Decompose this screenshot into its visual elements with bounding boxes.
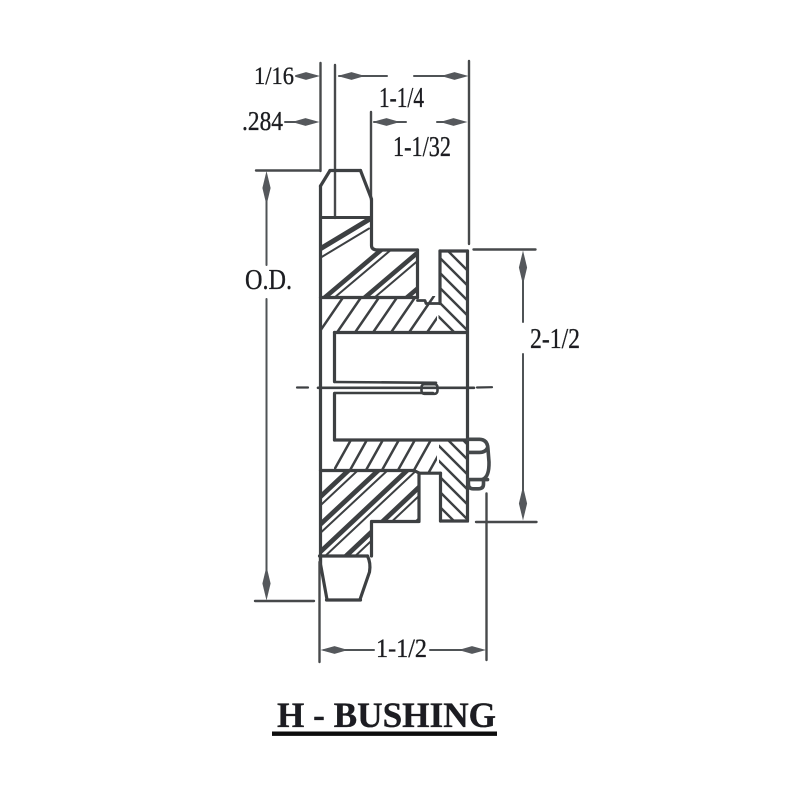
svg-text:O.D.: O.D. (245, 265, 292, 296)
svg-text:.284: .284 (242, 106, 283, 136)
svg-text:2-1/2: 2-1/2 (530, 324, 580, 355)
svg-text:1/16: 1/16 (254, 63, 294, 90)
svg-text:1-1/32: 1-1/32 (393, 131, 451, 163)
svg-text:1-1/2: 1-1/2 (376, 634, 427, 663)
svg-text:H - BUSHING: H - BUSHING (277, 695, 496, 735)
svg-text:1-1/4: 1-1/4 (379, 82, 424, 114)
